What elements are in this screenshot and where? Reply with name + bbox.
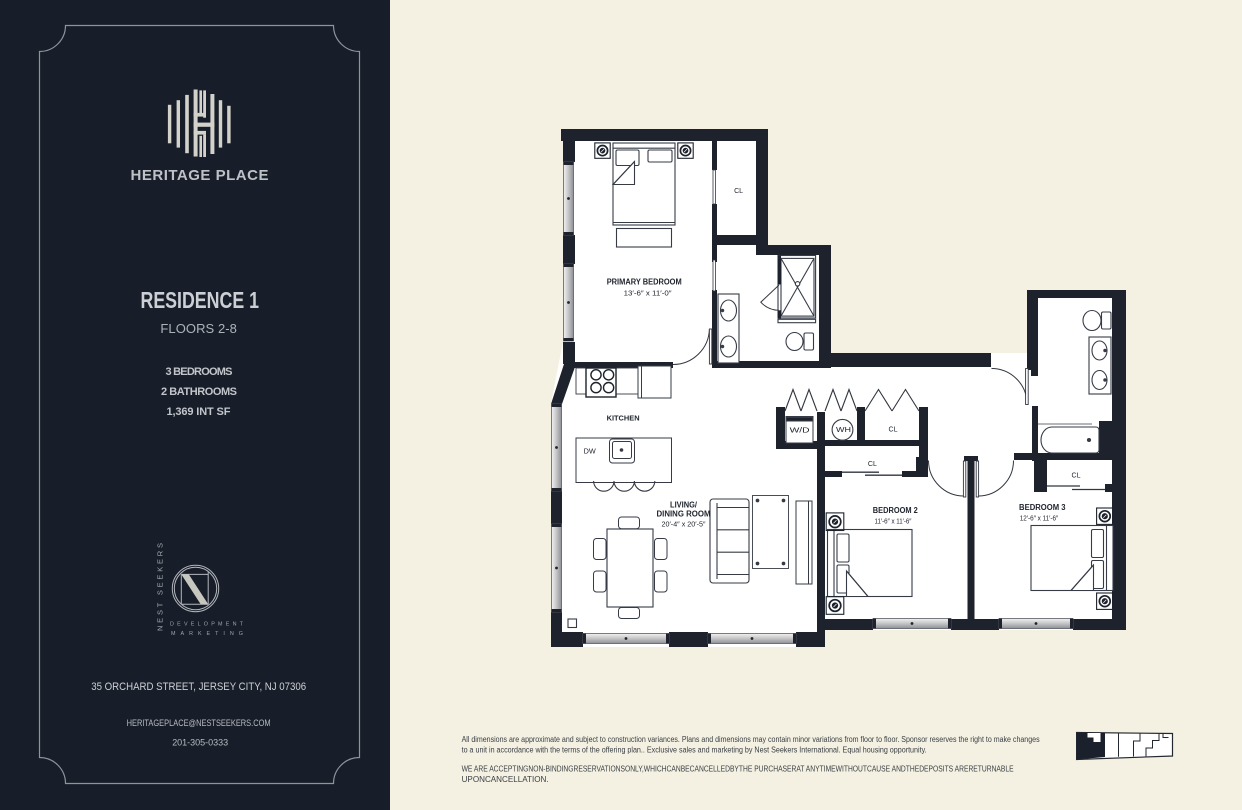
svg-text:WE ARE ACCEPTINGNON-BINDINGRES: WE ARE ACCEPTINGNON-BINDINGRESERVATIONSO… <box>462 765 1014 774</box>
svg-text:to a unit in accordance with t: to a unit in accordance with the terms o… <box>462 746 927 755</box>
svg-text:All dimensions are approximate: All dimensions are approximate and subje… <box>462 735 1040 744</box>
svg-text:UPONCANCELLATION.: UPONCANCELLATION. <box>462 775 549 784</box>
